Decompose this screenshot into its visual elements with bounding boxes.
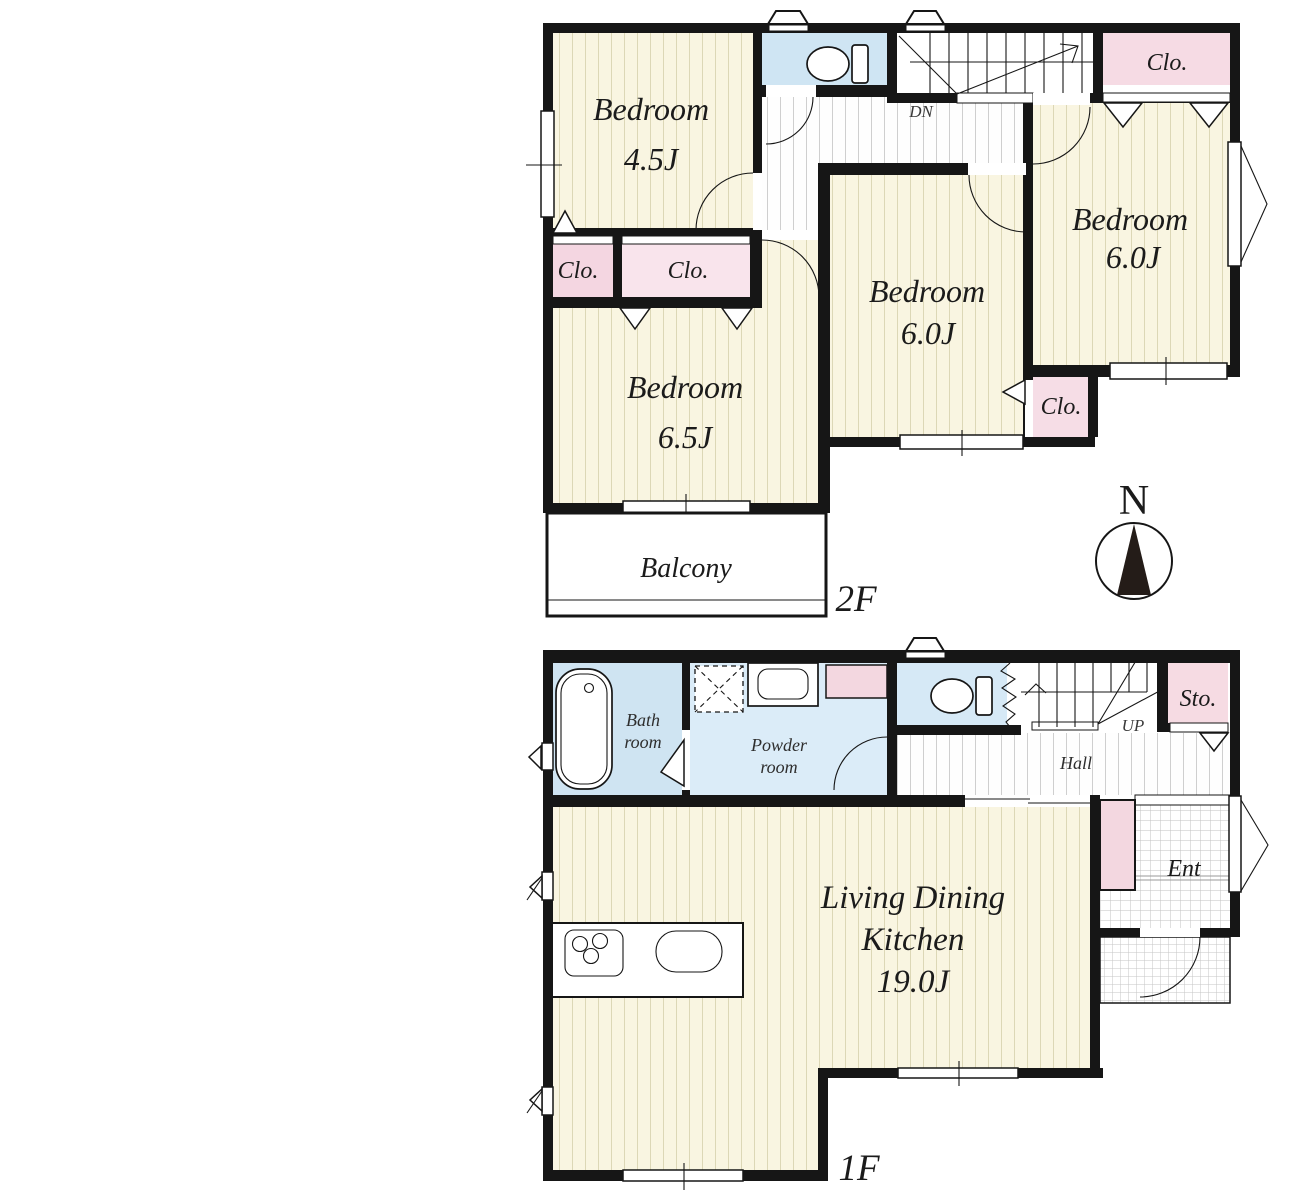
bedroom-6-0-mid-size: 6.0J	[901, 315, 957, 351]
toilet-2f-door-gap	[766, 85, 816, 97]
powder-label-2: room	[760, 757, 797, 777]
ldk-label-2: Kitchen	[861, 922, 965, 958]
corridor-door-gap	[762, 230, 818, 240]
closet-top-right-label: Clo.	[1147, 50, 1188, 76]
room-bedroom-4-5	[553, 33, 753, 228]
floor-plan-drawing: Bedroom 4.5J Bedroom 6.5J Bedroom 6.0J B…	[0, 0, 1302, 1201]
porch	[1100, 937, 1230, 1003]
toilet-icon-2f	[807, 45, 868, 83]
floor-plan: Bedroom 4.5J Bedroom 6.5J Bedroom 6.0J B…	[0, 0, 1302, 1201]
closet-top-right-door-track	[1103, 93, 1230, 102]
powder-label-1: Powder	[750, 735, 808, 755]
stairs-down-label: DN	[908, 102, 934, 121]
bath-label-2: room	[624, 732, 661, 752]
shoe-cabinet	[1100, 800, 1135, 890]
closet-right-label: Clo.	[668, 258, 709, 284]
bedroom-6-0-mid-name: Bedroom	[869, 273, 985, 309]
stairs-2f-landing	[957, 93, 1033, 103]
storage-door-track	[1170, 723, 1228, 732]
ldk-sliding-door	[965, 795, 1090, 807]
hall-2f-corridor	[762, 97, 818, 230]
bedroom-6-0-right-size: 6.0J	[1106, 239, 1162, 275]
bedroom-4-5-door-gap	[753, 173, 762, 230]
ldk-label-1: Living Dining	[820, 880, 1005, 916]
laundry-space-icon	[695, 666, 743, 712]
vanity-sink-icon	[748, 663, 818, 706]
balcony-label: Balcony	[640, 553, 732, 584]
bath-label-1: Bath	[626, 710, 660, 730]
bedroom-6-0-right-name: Bedroom	[1072, 201, 1188, 237]
bathtub-icon	[556, 669, 612, 789]
entrance-step	[1135, 795, 1232, 805]
closet-right-door-track	[622, 236, 750, 244]
closet-mid-label: Clo.	[1041, 394, 1082, 420]
stairs-1f-landing	[1032, 722, 1098, 730]
bedroom-mid-door-gap	[968, 163, 1026, 175]
linen-cabinet	[826, 665, 887, 698]
closet-mid-door-gap	[1025, 380, 1033, 437]
stairs-up-label: UP	[1122, 716, 1145, 735]
floor-1f: Bath room Powder room Hall UP Sto. Ent L…	[527, 638, 1268, 1190]
casement-window-arrow	[1241, 146, 1267, 262]
floor-2f: Bedroom 4.5J Bedroom 6.5J Bedroom 6.0J B…	[526, 11, 1267, 620]
entrance-door-arrow	[1241, 800, 1268, 891]
floor-2f-label: 2F	[835, 579, 877, 620]
ldk-size-label: 19.0J	[877, 964, 951, 1000]
front-door-gap	[1140, 928, 1200, 937]
compass-north-label: N	[1119, 478, 1149, 524]
hall-label: Hall	[1059, 753, 1092, 773]
room-bedroom-6-5	[553, 308, 818, 503]
toilet-icon-1f	[931, 677, 992, 715]
storage-label: Sto.	[1180, 686, 1217, 712]
bedroom-6-5-name: Bedroom	[627, 369, 743, 405]
entrance-label: Ent	[1166, 856, 1202, 882]
kitchen-counter	[552, 923, 743, 997]
bedroom-4-5-name: Bedroom	[593, 91, 709, 127]
bedroom-4-5-size: 4.5J	[624, 141, 680, 177]
floor-1f-label: 1F	[838, 1148, 880, 1189]
closet-left-door-track	[553, 236, 613, 244]
bedroom-6-5-size: 6.5J	[658, 419, 714, 455]
closet-left-label: Clo.	[558, 258, 599, 284]
compass: N	[1096, 478, 1172, 599]
vent-icon-1f	[906, 638, 945, 658]
bedroom-right-door-gap	[1033, 93, 1090, 105]
